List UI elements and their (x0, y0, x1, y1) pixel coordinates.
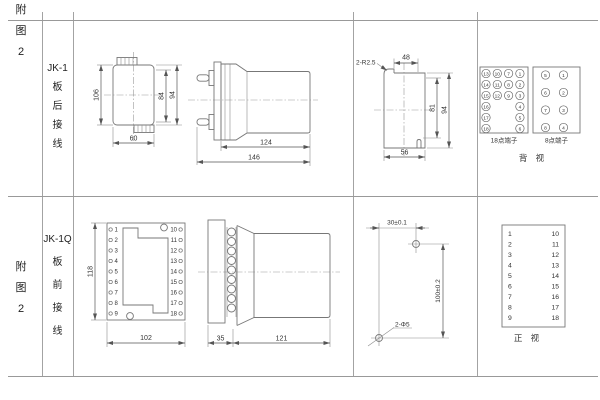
terminal-stud (197, 119, 209, 125)
jk1q-front-view: 123456789 101112131415161718 118 102 (88, 223, 186, 347)
terminal-dot (179, 249, 182, 252)
stud-washer (209, 71, 214, 86)
cutout-outline (384, 69, 425, 148)
terminal-number: 3 (115, 249, 119, 255)
dim-height-118: 118 (88, 266, 95, 277)
block18-label: 18点端子 (491, 136, 518, 145)
terminal-number: 16 (551, 294, 559, 301)
terminal-dot (109, 312, 112, 315)
terminal-dot (109, 301, 112, 304)
terminal-circle-number: 9 (507, 93, 510, 99)
terminal-number: 5 (115, 270, 119, 276)
drilling-plan: 30±0.1 100±0.2 2-Φ5 (366, 220, 449, 347)
terminal-number: 10 (551, 231, 559, 238)
terminal-dot (109, 238, 112, 241)
terminal-circle-number: 15 (483, 93, 489, 99)
terminal-number: 2 (508, 241, 512, 248)
rear-view-label: 背 视 (519, 153, 547, 163)
panel-cutout-view: 2-R2.5 48 81 94 56 (356, 55, 453, 162)
terminal-circle-number: 17 (483, 115, 489, 121)
terminal-number: 2 (115, 238, 119, 244)
terminal-tab-top (117, 58, 137, 66)
dim-height-94: 94 (442, 106, 449, 114)
block8-col-left: 5678 (541, 71, 549, 132)
drawing-sheet: 106 84 94 60 124 146 (0, 0, 600, 400)
dim-width-102: 102 (140, 335, 152, 342)
terminal-number: 6 (115, 280, 119, 286)
terminal-number: 18 (551, 315, 559, 322)
jk1-front-view: 106 84 94 60 (94, 52, 183, 147)
terminal-number: 10 (170, 228, 177, 234)
terminal-circle-number: 14 (483, 82, 489, 88)
terminal-circle-number: 7 (544, 108, 547, 114)
stud-washer (209, 115, 214, 130)
terminal-circle-number: 6 (544, 90, 547, 96)
dim-hole-spacing-h: 30±0.1 (387, 220, 407, 227)
terminal-dot (109, 280, 112, 283)
terminal-number: 11 (552, 241, 559, 248)
terminal-number: 4 (508, 262, 512, 269)
terminal-number: 15 (551, 284, 559, 291)
terminal-number: 1 (115, 228, 119, 234)
terminal-number: 12 (170, 249, 177, 255)
dim-total-146: 146 (248, 155, 260, 162)
terminal-number: 14 (170, 270, 177, 276)
jk1-side-view: 124 146 (188, 62, 318, 166)
terminal-circle-number: 13 (483, 71, 489, 77)
relay-cover-outline (123, 228, 168, 313)
terminal-circle-number: 4 (519, 104, 522, 110)
dim-height-106: 106 (94, 89, 101, 101)
terminal-number: 18 (170, 312, 177, 318)
terminal-number: 13 (551, 262, 559, 269)
terminal-circle-number: 7 (507, 71, 510, 77)
dim-body-121: 121 (276, 336, 288, 343)
terminal-number: 7 (508, 294, 512, 301)
terminal-circle-number: 16 (483, 104, 489, 110)
terminal-circle-number: 3 (562, 108, 565, 114)
label-hole-diameter: 2-Φ5 (395, 322, 410, 329)
label-corner-radius: 2-R2.5 (356, 60, 376, 67)
figure-label-row1: 附 图 2 (0, 0, 42, 63)
front-flange (208, 220, 225, 323)
terminal-number: 8 (508, 305, 512, 312)
block18-col-mid-right: 789 (504, 69, 512, 99)
terminal-circle-number: 6 (519, 126, 522, 132)
terminal-dot (109, 291, 112, 294)
block8-col-right: 1234 (559, 71, 567, 132)
terminal-dot (179, 312, 182, 315)
terminal-number: 5 (508, 273, 512, 280)
terminal-dot (179, 280, 182, 283)
terminal-number: 13 (170, 259, 177, 265)
front-terminals-left: 123456789 (109, 228, 119, 318)
terminal-table-right: 101112131415161718 (551, 231, 559, 322)
terminal-number: 7 (115, 291, 119, 297)
front-terminals-right: 101112131415161718 (170, 228, 182, 318)
block-8-outline (533, 67, 580, 133)
jk1q-side-view: 35 121 (198, 220, 340, 347)
mounting-hole (127, 313, 134, 320)
terminal-circle-number: 5 (519, 115, 522, 121)
terminal-number: 16 (170, 291, 177, 297)
terminal-circle-number: 8 (507, 82, 510, 88)
terminal-dot (109, 259, 112, 262)
terminal-tab-bottom (134, 125, 154, 133)
dim-outer-94: 94 (170, 91, 177, 99)
terminal-dot (109, 270, 112, 273)
relay-body (254, 234, 330, 318)
mounting-flange (214, 62, 221, 140)
terminal-number: 14 (551, 273, 559, 280)
drawing-canvas: 106 84 94 60 124 146 (0, 0, 600, 400)
front-view-label: 正 视 (514, 333, 542, 343)
terminal-table-left: 123456789 (508, 231, 512, 322)
block18-col-mid-left: 101112 (493, 69, 501, 99)
block18-col-outer-left: 131415161718 (482, 69, 490, 132)
rear-terminal-blocks: 131415161718 101112 789 123456 5678 1234… (480, 67, 580, 163)
terminal-number: 8 (115, 301, 119, 307)
terminal-circle-number: 3 (519, 93, 522, 99)
terminal-number: 9 (115, 312, 119, 318)
terminal-circle-number: 1 (519, 71, 522, 77)
terminal-number: 11 (171, 238, 178, 244)
terminal-dot (179, 291, 182, 294)
terminal-number: 3 (508, 252, 512, 259)
dim-top-48: 48 (402, 55, 410, 62)
terminal-number: 1 (508, 231, 512, 238)
terminal-dot (179, 270, 182, 273)
model-label-jk1q: JK-1Q 板 前 接 线 (42, 228, 73, 343)
terminal-number: 15 (170, 280, 177, 286)
terminal-dot (109, 228, 112, 231)
terminal-circle-number: 8 (544, 125, 547, 131)
terminal-stud (197, 75, 209, 81)
dim-inner-84: 84 (159, 92, 166, 100)
terminal-number: 17 (551, 305, 559, 312)
terminal-number: 17 (170, 301, 177, 307)
terminal-circle-number: 12 (495, 93, 501, 99)
terminal-dot (179, 238, 182, 241)
block8-label: 8点端子 (545, 136, 569, 145)
terminal-number: 9 (508, 315, 512, 322)
terminal-circle-number: 1 (562, 73, 565, 79)
dim-flange-35: 35 (217, 336, 225, 343)
terminal-number: 6 (508, 284, 512, 291)
figure-label-row2: 附 图 2 (0, 257, 42, 320)
terminal-circle-number: 2 (519, 82, 522, 88)
terminal-circle-number: 11 (495, 82, 500, 88)
dim-width-60: 60 (130, 136, 138, 143)
front-terminal-table: 123456789 101112131415161718 正 视 (502, 225, 565, 343)
terminal-dot (179, 259, 182, 262)
dim-hole-spacing-v: 100±0.2 (435, 279, 442, 303)
terminal-circle-number: 4 (562, 125, 565, 131)
terminal-circle-number: 18 (483, 126, 489, 132)
dim-inner-81: 81 (430, 104, 437, 112)
dim-width-56: 56 (401, 150, 409, 157)
mounting-hole (161, 224, 168, 231)
terminal-circle-number: 5 (544, 73, 547, 79)
terminal-number: 12 (551, 252, 559, 259)
cutout-slot (417, 140, 421, 149)
relay-body (221, 64, 310, 140)
terminal-dot (109, 249, 112, 252)
block18-col-outer-right: 123456 (516, 69, 524, 132)
terminal-dot (179, 228, 182, 231)
dim-body-124: 124 (260, 140, 272, 147)
terminal-dot (179, 301, 182, 304)
terminal-number: 4 (115, 259, 119, 265)
terminal-circle-number: 10 (495, 71, 501, 77)
terminal-circle-number: 2 (562, 90, 565, 96)
model-label-jk1: JK-1 板 后 接 线 (42, 59, 73, 154)
